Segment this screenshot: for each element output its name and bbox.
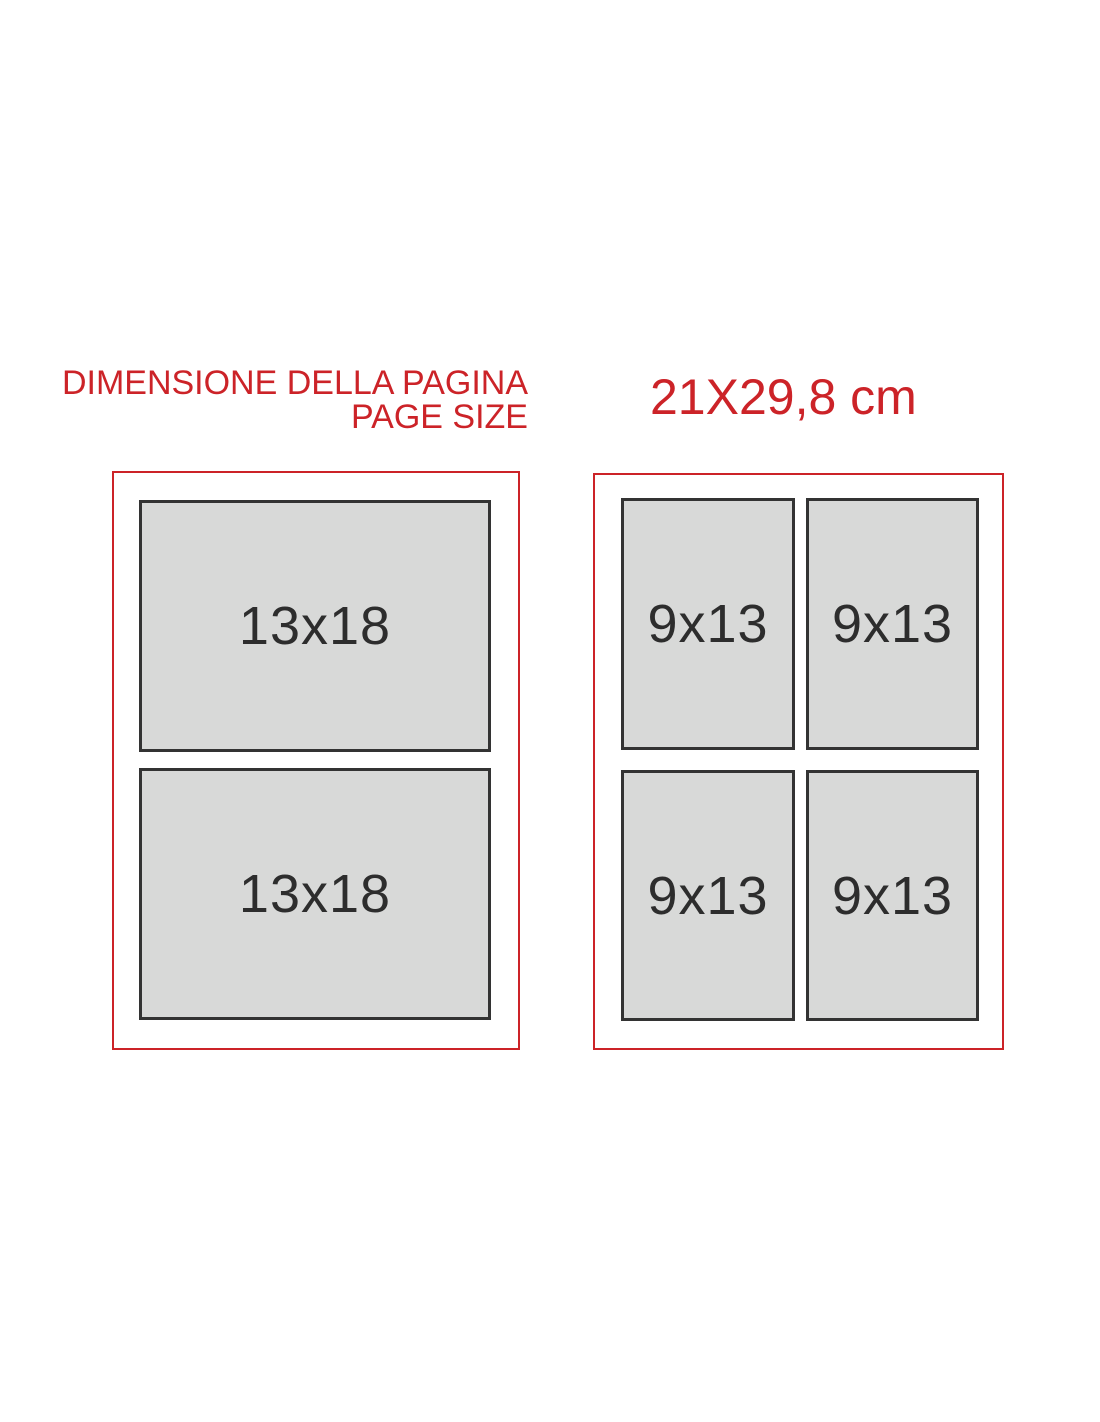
photo-slot-13x18: 13x18 xyxy=(139,500,491,752)
photo-slot-9x13: 9x13 xyxy=(806,770,979,1021)
page-outline-right: 9x13 9x13 9x13 9x13 xyxy=(593,473,1004,1050)
slot-label: 9x13 xyxy=(832,865,953,927)
page-size-value: 21X29,8 cm xyxy=(650,372,917,422)
photo-slot-9x13: 9x13 xyxy=(806,498,979,750)
page-title: DIMENSIONE DELLA PAGINA PAGE SIZE xyxy=(62,366,528,434)
slot-label: 13x18 xyxy=(239,595,391,657)
slot-label: 9x13 xyxy=(647,593,768,655)
title-line-italian: DIMENSIONE DELLA PAGINA xyxy=(62,366,528,400)
page-size-diagram: DIMENSIONE DELLA PAGINA PAGE SIZE 21X29,… xyxy=(0,0,1100,1422)
page-outline-left: 13x18 13x18 xyxy=(112,471,520,1050)
title-line-english: PAGE SIZE xyxy=(62,400,528,434)
slot-label: 9x13 xyxy=(832,593,953,655)
photo-slot-9x13: 9x13 xyxy=(621,498,795,750)
slot-label: 13x18 xyxy=(239,863,391,925)
photo-slot-13x18: 13x18 xyxy=(139,768,491,1020)
photo-slot-9x13: 9x13 xyxy=(621,770,795,1021)
slot-label: 9x13 xyxy=(647,865,768,927)
